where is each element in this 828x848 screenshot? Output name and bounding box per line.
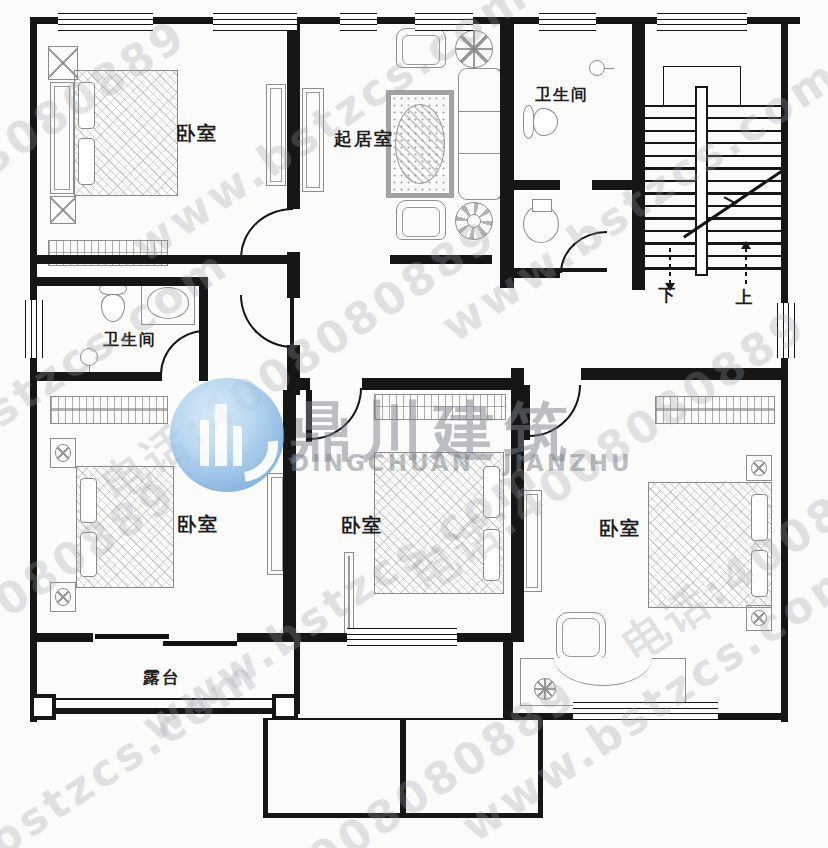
wall (263, 813, 543, 818)
wall (511, 368, 524, 642)
wardrobe-icon (374, 394, 506, 420)
door-arc (310, 388, 362, 440)
wall (538, 718, 543, 818)
wall-lamp-icon (589, 60, 605, 76)
staircase (645, 24, 781, 272)
stair-handrail (695, 86, 708, 276)
door-arc (529, 385, 581, 437)
window-icon (58, 13, 153, 31)
wall (581, 368, 788, 380)
window-icon (539, 13, 596, 31)
room-label-balcony: 露台 (143, 666, 181, 689)
fan-icon (455, 202, 493, 240)
stair-down-arrow (669, 248, 671, 284)
rug-icon (386, 90, 454, 198)
nightstand-icon (50, 582, 76, 612)
dresser-icon (266, 84, 286, 186)
nightstand-icon (50, 438, 76, 468)
sliding-door-icon (95, 634, 169, 639)
door-arc (160, 330, 205, 375)
plant-icon (534, 678, 556, 700)
window-icon (347, 628, 457, 646)
wall (632, 24, 645, 290)
room-label-bedroom-bottom-middle: 卧室 (341, 513, 383, 539)
plant-icon (455, 30, 493, 68)
wall (30, 708, 300, 714)
nightstand-icon (746, 455, 772, 481)
wall (503, 642, 513, 720)
stair-treads (645, 105, 781, 273)
cabinet-icon (50, 196, 76, 224)
wall (300, 378, 310, 390)
window-icon (415, 13, 473, 31)
room-label-bedroom-top-left: 卧室 (176, 121, 218, 147)
toilet-icon (523, 102, 559, 142)
wall (263, 718, 543, 720)
wall (514, 268, 560, 278)
stair-up-arrow (745, 248, 747, 284)
window-icon (213, 13, 297, 31)
wall (300, 633, 347, 642)
bed-icon (648, 482, 772, 608)
stair-label-up: 上 (736, 286, 755, 309)
sliding-door-icon (163, 641, 237, 646)
stair-label-down: 下 (659, 284, 678, 307)
window-icon (657, 13, 747, 31)
window-icon (340, 13, 377, 31)
balcony-post (272, 694, 298, 720)
wall (287, 345, 300, 395)
room-label-bathroom-left: 卫生间 (103, 330, 157, 351)
window-icon (25, 300, 43, 358)
door-arc (240, 208, 293, 258)
wall (287, 24, 300, 209)
wall (30, 372, 162, 381)
tv-cabinet-icon (302, 88, 324, 192)
headboard-icon (50, 82, 74, 194)
watermark-text: www.bstzcs.com (0, 648, 268, 848)
wall (263, 718, 268, 818)
armchair-icon (396, 28, 446, 68)
wall (287, 252, 300, 298)
wall (390, 255, 492, 264)
balcony-inner-line (36, 698, 294, 700)
sink-icon (523, 205, 559, 243)
armchair-icon (396, 200, 446, 240)
window-icon (573, 702, 718, 720)
tv-cabinet-icon (522, 490, 542, 592)
sink-icon (141, 281, 195, 325)
floor-drain-icon (80, 348, 98, 366)
room-label-bedroom-bottom-left: 卧室 (177, 512, 219, 538)
room-label-bedroom-bottom-right: 卧室 (599, 516, 641, 542)
wall (500, 24, 514, 288)
toilet-icon (96, 283, 130, 323)
bed-icon (76, 466, 174, 588)
wall (283, 390, 296, 642)
door-arc (240, 295, 293, 348)
room-label-living-room: 起居室 (334, 127, 394, 151)
wall (30, 17, 37, 722)
room-label-bathroom-top: 卫生间 (535, 85, 589, 106)
wall (30, 633, 93, 642)
sofa-icon (458, 68, 504, 200)
window-icon (777, 303, 795, 358)
wall (400, 718, 406, 818)
chair-icon (556, 612, 606, 660)
wall (30, 277, 208, 286)
wardrobe-icon (655, 396, 775, 424)
wall (592, 180, 632, 190)
wall (362, 378, 511, 390)
balcony-post (30, 694, 56, 720)
door-arc (560, 231, 607, 273)
cabinet-icon (344, 552, 354, 636)
bed-icon (374, 452, 504, 594)
floor-plan: 卧室 起居室 卫生间 卫生间 卧室 卧室 卧室 露台 下 上 鼎川建筑 DING… (0, 0, 828, 848)
wardrobe-icon (50, 396, 168, 424)
wall (514, 180, 560, 190)
bed-icon (74, 70, 178, 196)
nightstand-icon (746, 605, 772, 631)
